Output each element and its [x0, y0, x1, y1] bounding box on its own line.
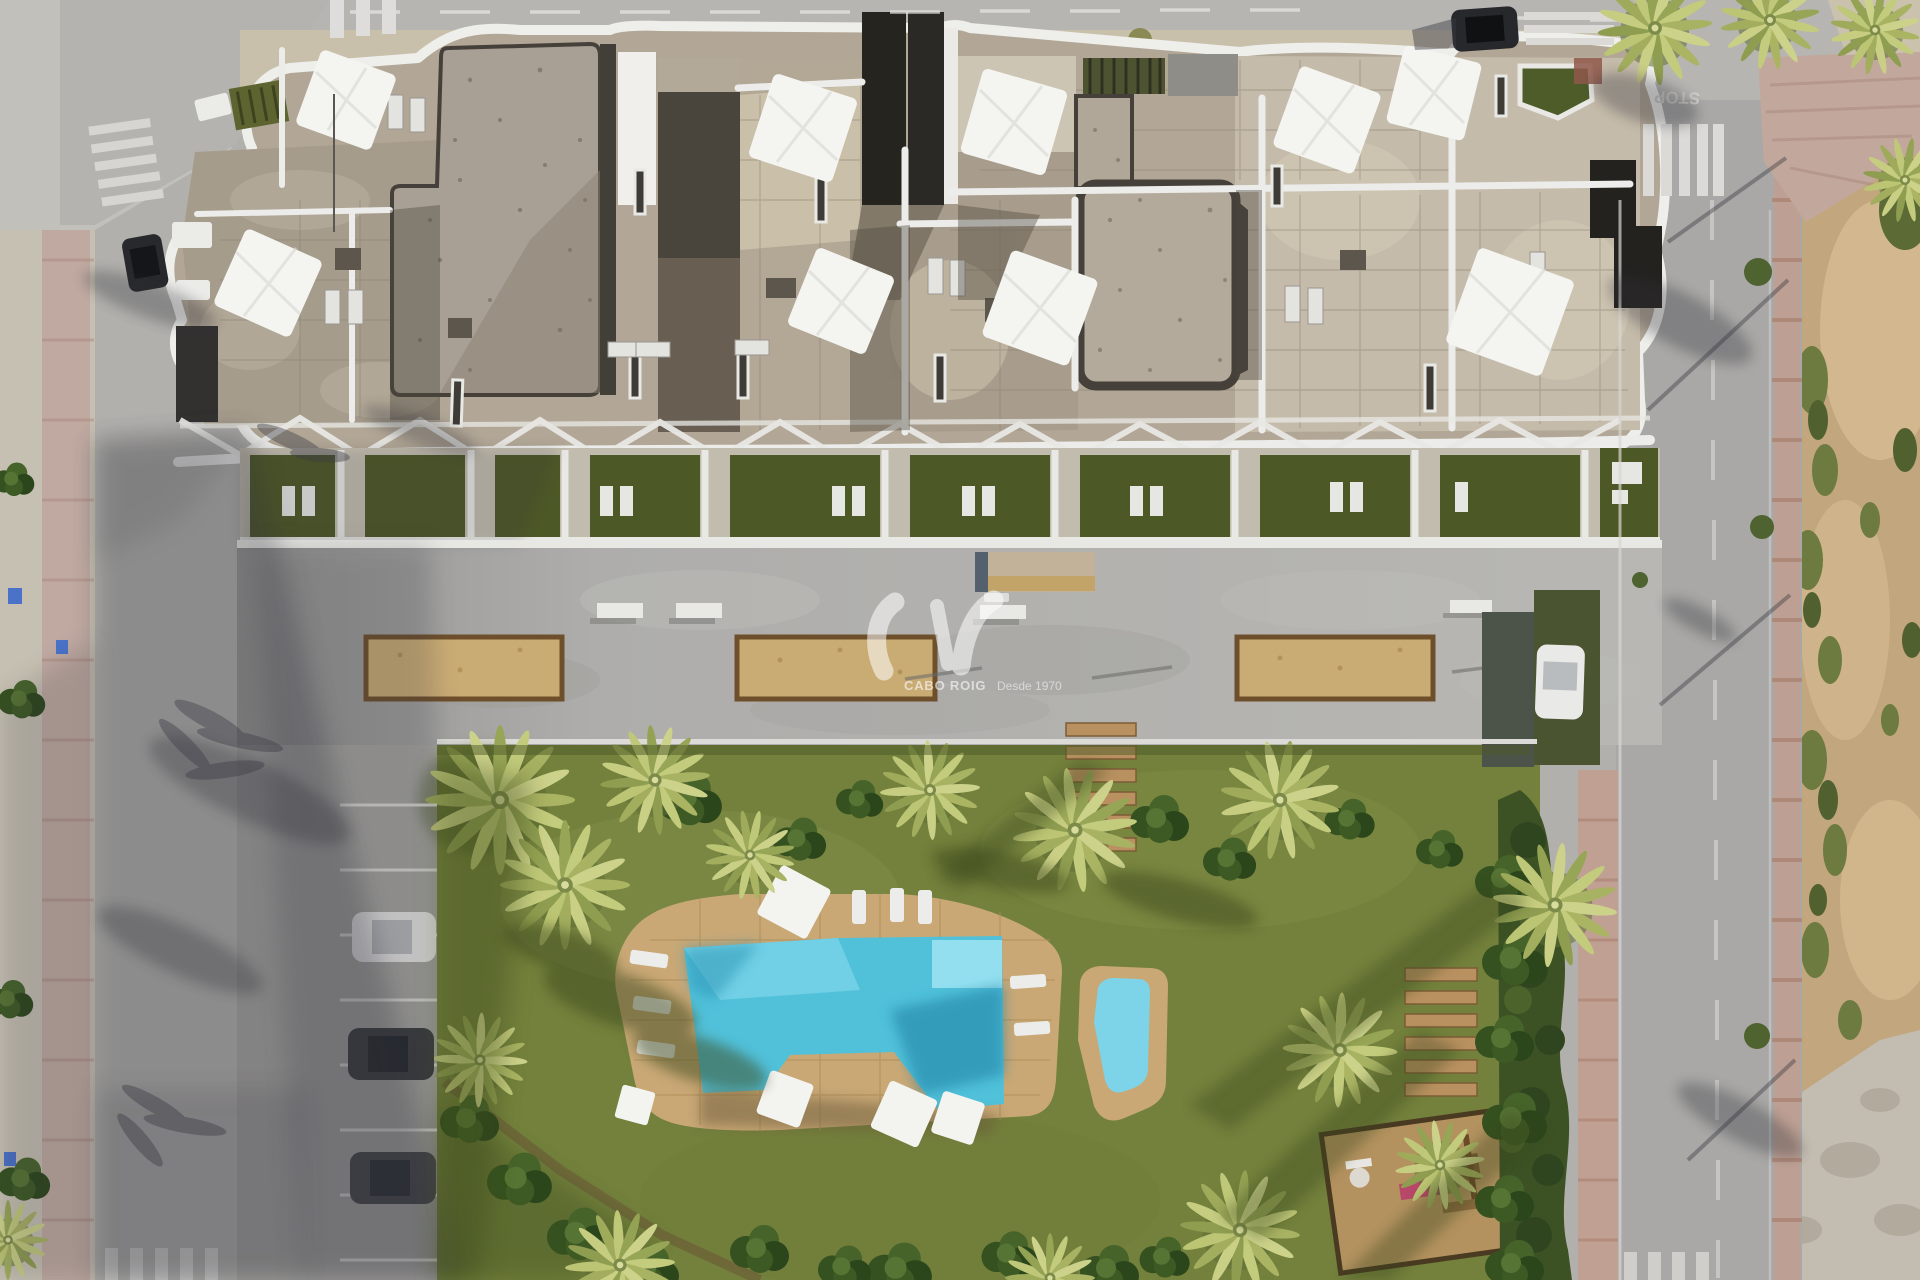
- svg-text:CABO ROIG: CABO ROIG: [904, 678, 986, 693]
- svg-text:Desde 1970: Desde 1970: [997, 679, 1062, 693]
